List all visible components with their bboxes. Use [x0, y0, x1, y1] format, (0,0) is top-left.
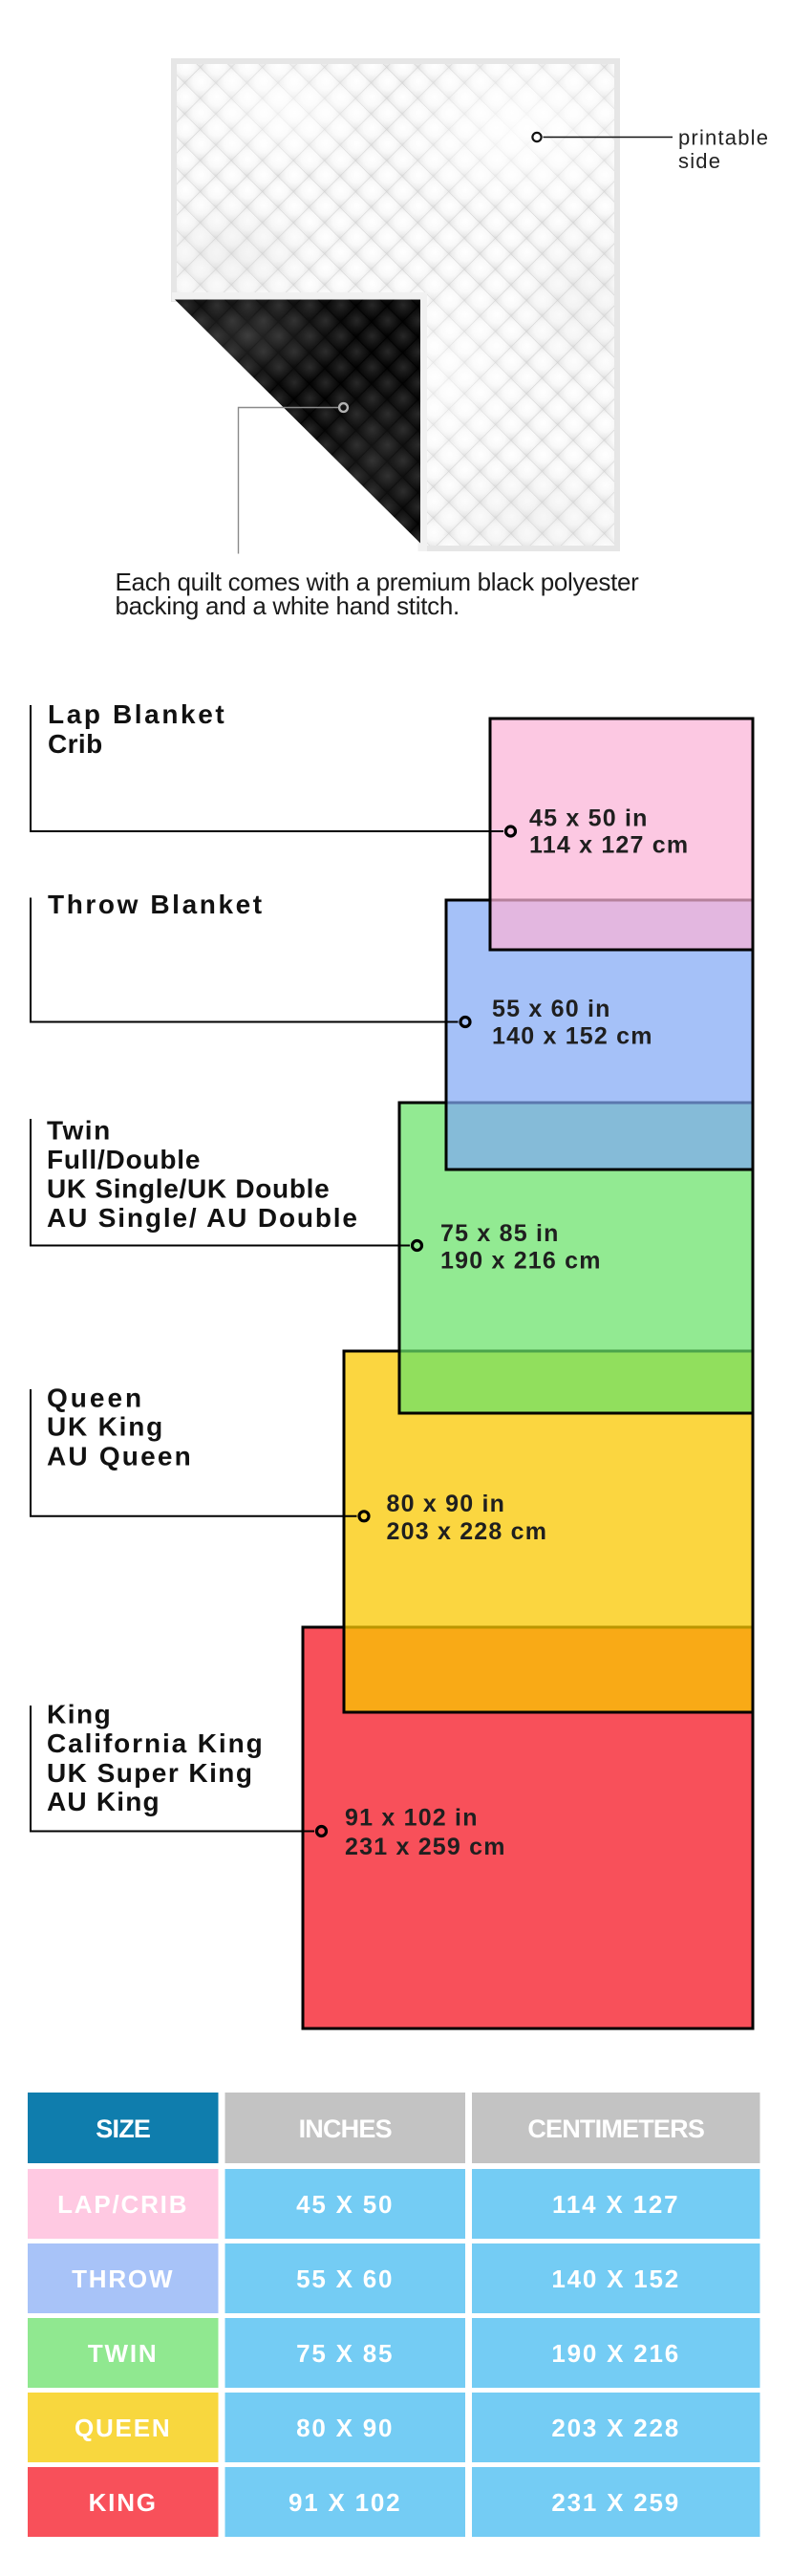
- svg-text:Throw Blanket: Throw Blanket: [48, 890, 265, 919]
- svg-text:KING: KING: [89, 2488, 158, 2517]
- svg-text:Crib: Crib: [48, 729, 103, 759]
- svg-text:INCHES: INCHES: [299, 2114, 392, 2143]
- svg-text:140 x 152 cm: 140 x 152 cm: [492, 1023, 653, 1050]
- svg-text:80 x 90 in: 80 x 90 in: [387, 1491, 506, 1517]
- svg-text:side: side: [678, 149, 721, 173]
- svg-text:55 X 60: 55 X 60: [296, 2265, 394, 2293]
- svg-text:SIZE: SIZE: [96, 2114, 150, 2143]
- svg-text:140 X 152: 140 X 152: [551, 2265, 680, 2293]
- svg-text:LAP/CRIB: LAP/CRIB: [57, 2190, 188, 2219]
- svg-text:UK Super King: UK Super King: [47, 1758, 253, 1788]
- svg-text:91 x 102 in: 91 x 102 in: [345, 1805, 479, 1832]
- svg-text:AU Queen: AU Queen: [47, 1442, 193, 1471]
- svg-text:UK Single/UK Double: UK Single/UK Double: [47, 1174, 330, 1204]
- svg-text:114 X 127: 114 X 127: [552, 2190, 679, 2219]
- svg-text:TWIN: TWIN: [88, 2339, 159, 2368]
- svg-text:King: King: [47, 1700, 112, 1729]
- svg-text:203 x 228 cm: 203 x 228 cm: [387, 1518, 548, 1545]
- svg-text:Lap Blanket: Lap Blanket: [48, 699, 226, 729]
- svg-text:California King: California King: [47, 1728, 265, 1758]
- svg-text:190 x 216 cm: 190 x 216 cm: [440, 1248, 602, 1275]
- svg-text:55 x 60 in: 55 x 60 in: [492, 996, 611, 1022]
- svg-text:THROW: THROW: [72, 2265, 174, 2293]
- svg-text:231 X 259: 231 X 259: [551, 2488, 680, 2517]
- svg-text:Twin: Twin: [47, 1116, 112, 1146]
- svg-text:75 X 85: 75 X 85: [296, 2339, 394, 2368]
- svg-text:printable: printable: [678, 126, 769, 150]
- svg-text:190 X 216: 190 X 216: [551, 2339, 680, 2368]
- svg-text:AU King: AU King: [47, 1787, 160, 1816]
- svg-text:AU Single/ AU Double: AU Single/ AU Double: [47, 1203, 359, 1233]
- svg-text:231 x 259 cm: 231 x 259 cm: [345, 1834, 506, 1860]
- svg-text:203 X 228: 203 X 228: [551, 2414, 680, 2442]
- svg-text:45 X 50: 45 X 50: [296, 2190, 394, 2219]
- svg-text:backing and a white hand stitc: backing and a white hand stitch.: [116, 591, 460, 620]
- svg-text:91 X 102: 91 X 102: [289, 2488, 402, 2517]
- svg-text:UK King: UK King: [47, 1412, 164, 1442]
- svg-text:Full/Double: Full/Double: [47, 1145, 201, 1174]
- svg-text:CENTIMETERS: CENTIMETERS: [527, 2114, 704, 2143]
- svg-text:75 x 85 in: 75 x 85 in: [440, 1220, 560, 1247]
- svg-text:QUEEN: QUEEN: [75, 2414, 171, 2442]
- svg-text:114 x 127 cm: 114 x 127 cm: [529, 832, 689, 859]
- svg-text:45 x 50 in: 45 x 50 in: [529, 805, 649, 832]
- svg-text:80 X 90: 80 X 90: [296, 2414, 394, 2442]
- svg-text:Queen: Queen: [47, 1384, 144, 1413]
